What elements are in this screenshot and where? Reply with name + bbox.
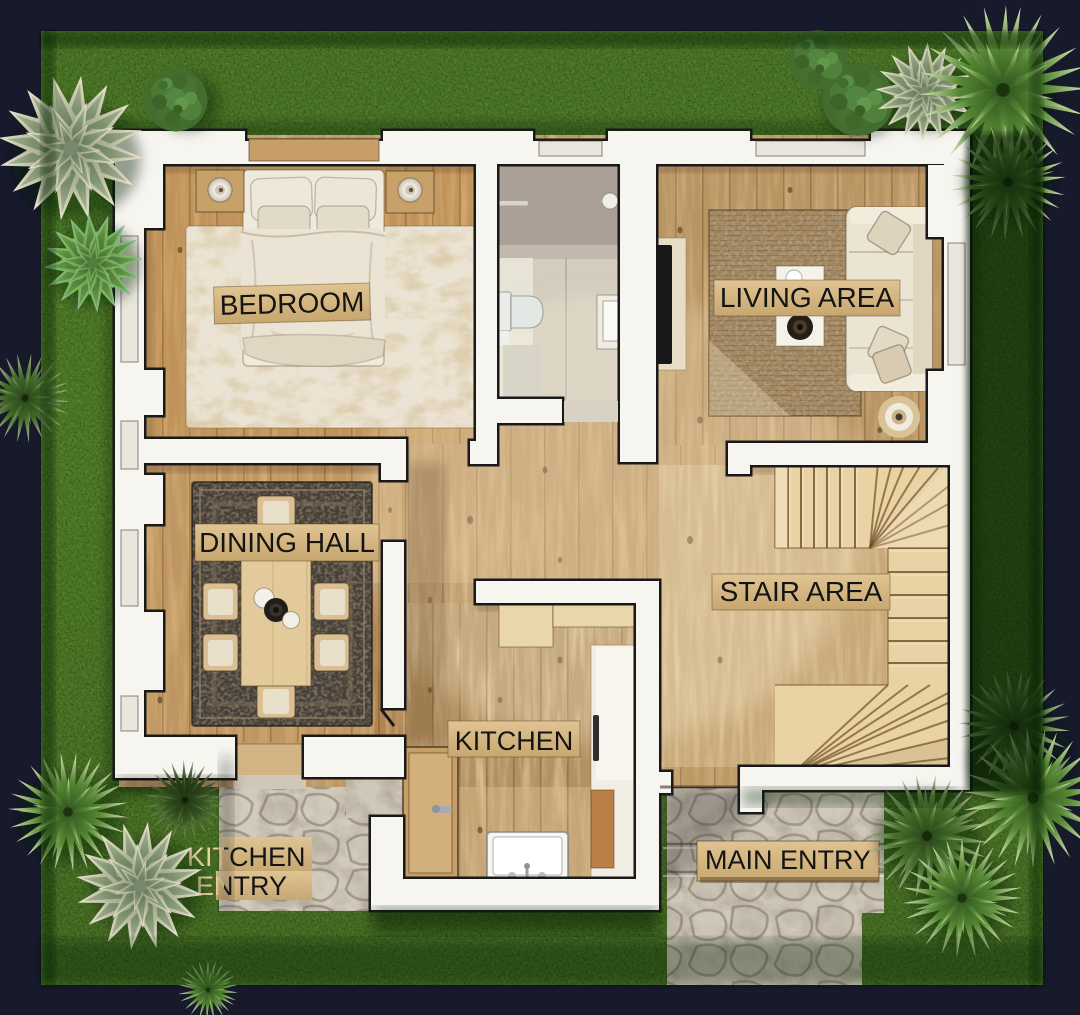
- svg-text:DINING HALL: DINING HALL: [199, 527, 375, 558]
- svg-text:STAIR AREA: STAIR AREA: [720, 576, 883, 607]
- svg-text:MAIN ENTRY: MAIN ENTRY: [705, 845, 871, 875]
- svg-text:LIVING AREA: LIVING AREA: [720, 282, 895, 313]
- svg-text:BEDROOM: BEDROOM: [219, 286, 364, 321]
- svg-text:KITCHEN: KITCHEN: [455, 726, 574, 756]
